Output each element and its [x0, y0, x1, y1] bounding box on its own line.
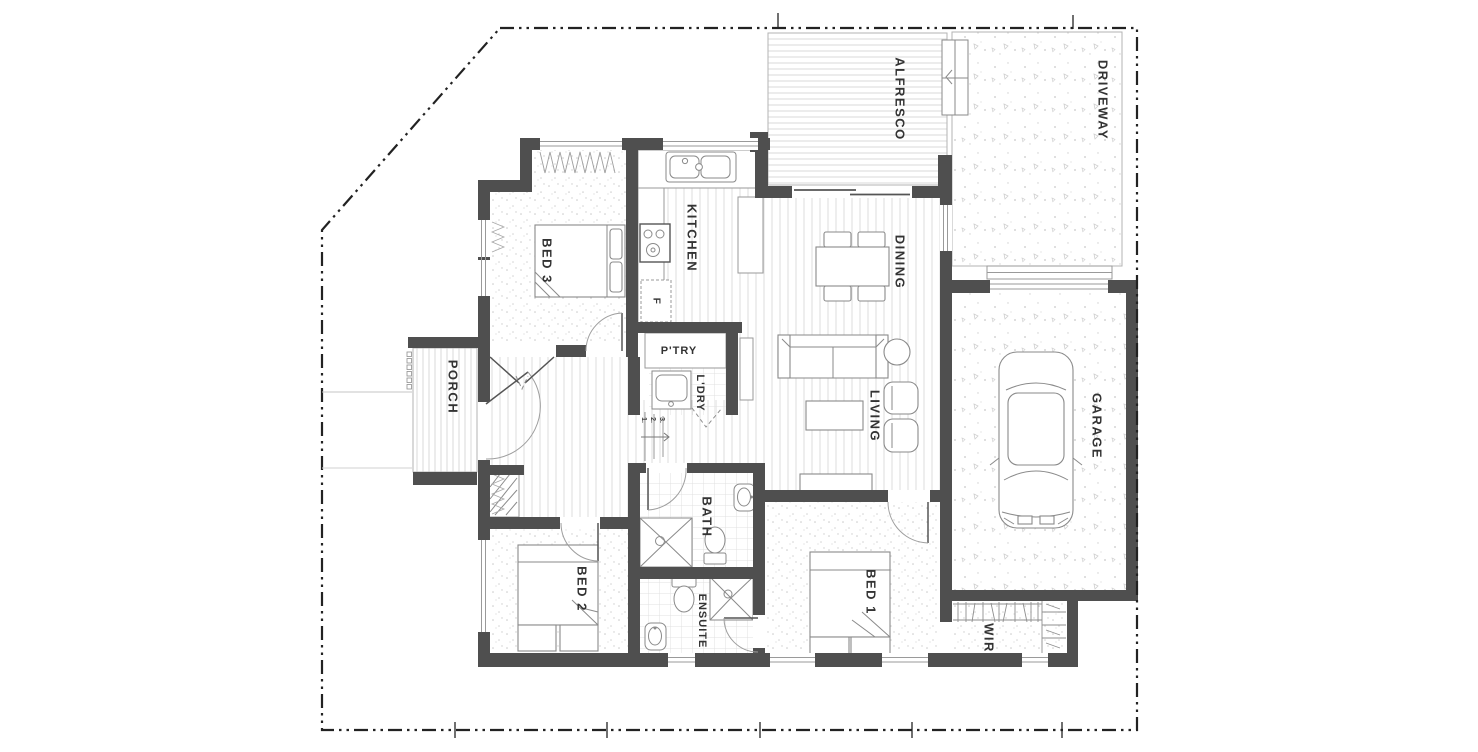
bed1-south-window — [882, 653, 928, 667]
label-alfresco: ALFRESCO — [893, 57, 908, 141]
label-bed1: BED 1 — [864, 569, 879, 615]
wir-south-window — [1022, 653, 1048, 667]
nook-bench — [740, 338, 753, 400]
bed3-door-opening — [586, 345, 626, 357]
label-porch: PORCH — [446, 360, 461, 414]
ensuite-basin — [645, 623, 666, 650]
label-fridge: F — [650, 298, 661, 305]
label-dining: DINING — [893, 235, 908, 290]
alfresco-deck — [768, 33, 947, 185]
bed3-north-window — [540, 138, 622, 150]
wir-floor — [952, 600, 1066, 653]
label-garage: GARAGE — [1090, 393, 1105, 459]
armchair — [884, 419, 918, 452]
bath-basin — [734, 484, 755, 511]
bed2-door-opening — [560, 517, 600, 529]
label-bed3: BED 3 — [540, 238, 555, 284]
tv-unit — [800, 474, 872, 491]
bath-door-opening — [646, 463, 687, 473]
label-driveway: DRIVEWAY — [1096, 60, 1111, 140]
car — [990, 352, 1082, 528]
label-ensuite: ENSUITE — [696, 594, 708, 649]
label-bath: BATH — [700, 496, 715, 537]
bed1-door-opening — [888, 490, 930, 502]
laundry-trough — [652, 371, 691, 409]
label-living: LIVING — [868, 390, 883, 442]
label-wir: WIR — [982, 623, 997, 653]
ensuite-door-opening — [753, 615, 765, 648]
label-pantry: P'TRY — [661, 345, 698, 357]
kitchen-sink — [666, 152, 736, 182]
porch-deck — [413, 348, 477, 472]
label-step-3: 3. — [658, 417, 665, 423]
bed1-south-window — [770, 653, 815, 667]
garage-door — [990, 280, 1108, 293]
armchair — [884, 382, 918, 414]
ensuite-south-window — [668, 653, 695, 667]
ensuite-shower — [710, 577, 753, 620]
kitchen-island-bench — [738, 197, 763, 273]
coffee-table — [806, 401, 863, 430]
sofa — [778, 335, 888, 378]
label-bed2: BED 2 — [575, 566, 590, 612]
front-door-opening — [478, 402, 490, 460]
kitchen-window — [663, 138, 758, 150]
cooktop — [640, 224, 670, 262]
bed2-west-window — [478, 540, 490, 632]
label-kitchen: KITCHEN — [685, 204, 700, 272]
alfresco-sliding-door — [792, 186, 912, 198]
porch-balustrade — [407, 352, 412, 389]
ensuite-toilet — [672, 577, 696, 612]
bath-shower — [640, 518, 692, 567]
dining-east-window — [940, 205, 952, 251]
side-table — [884, 339, 910, 365]
floor-plan-drawing: ALFRESCO DRIVEWAY KITCHEN DINING LIVING … — [0, 0, 1478, 752]
wir-opening — [940, 622, 952, 653]
floor-plan-page: ALFRESCO DRIVEWAY KITCHEN DINING LIVING … — [0, 0, 1478, 752]
label-step-2: 2. — [649, 417, 656, 423]
label-step-1: 1. — [640, 417, 647, 423]
alfresco-bbq — [942, 40, 968, 115]
label-laundry: L'DRY — [694, 374, 706, 411]
